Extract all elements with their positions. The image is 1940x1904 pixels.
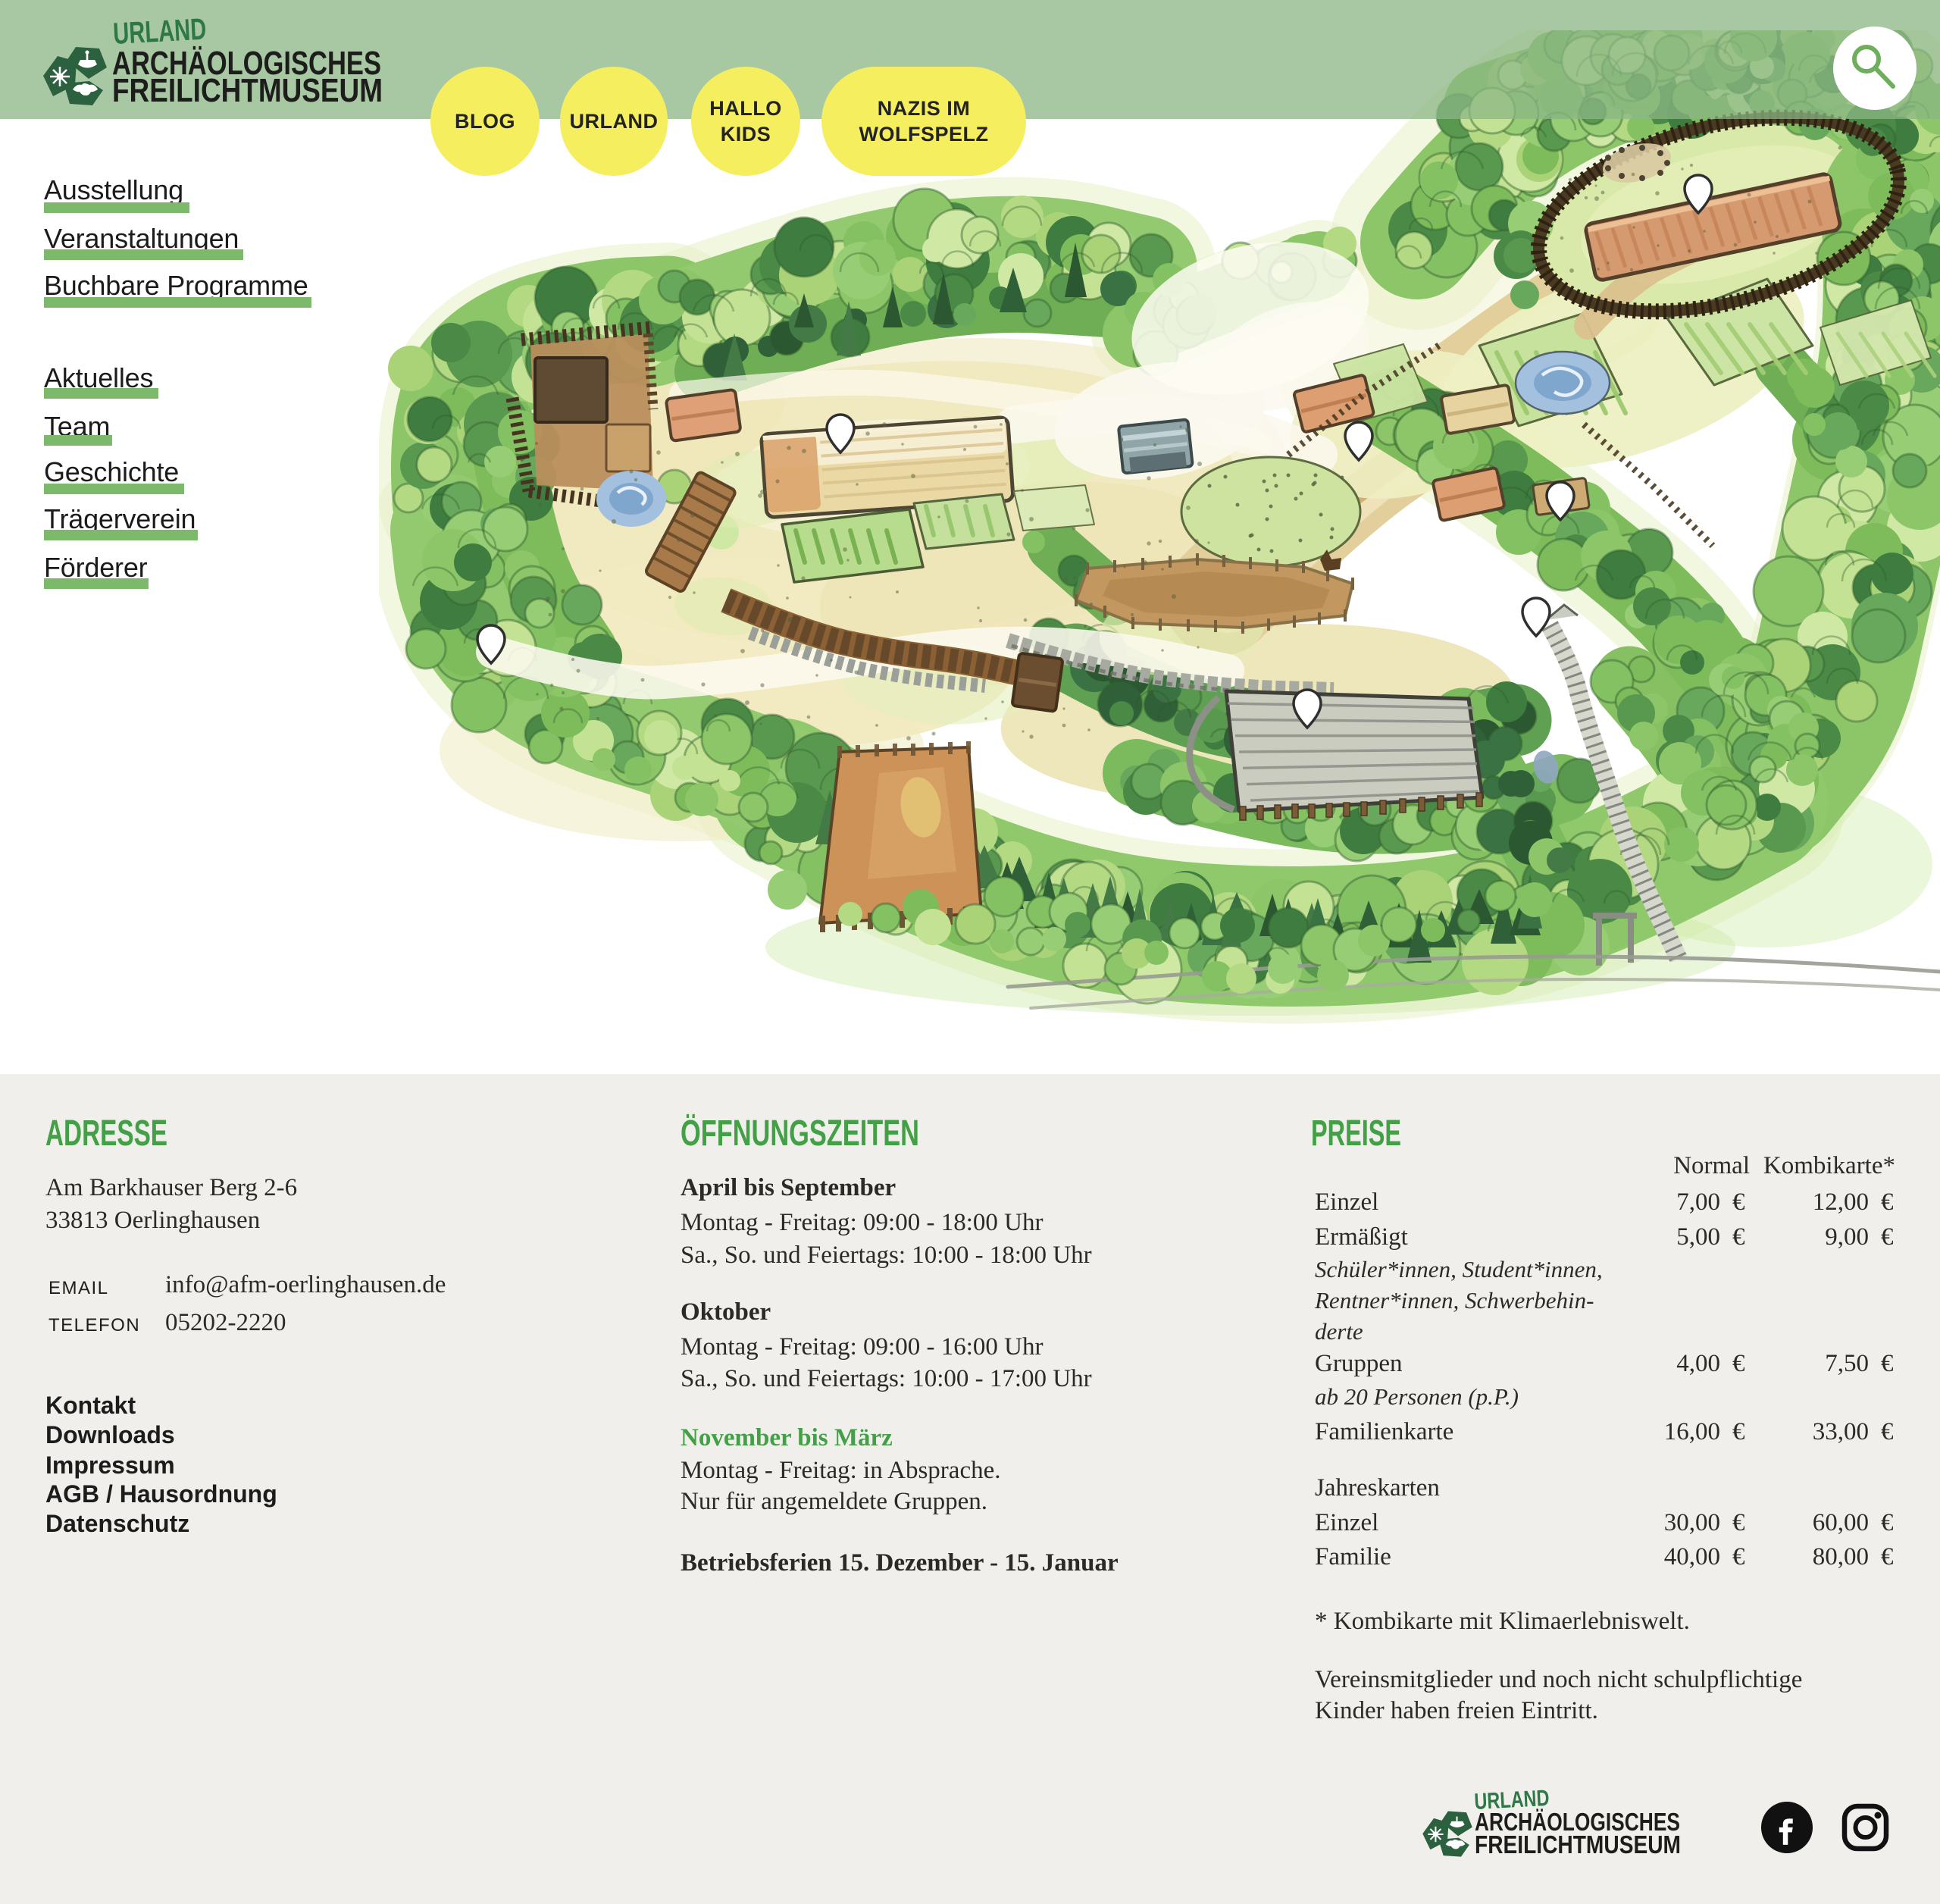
svg-text:ÖFFNUNGSZEITEN: ÖFFNUNGSZEITEN	[681, 1113, 919, 1154]
svg-text:ADRESSE: ADRESSE	[45, 1113, 167, 1154]
svg-text:FREILICHTMUSEUM: FREILICHTMUSEUM	[112, 72, 383, 109]
svg-text:PREISE: PREISE	[1311, 1113, 1401, 1154]
svg-text:FREILICHTMUSEUM: FREILICHTMUSEUM	[1475, 1830, 1681, 1859]
